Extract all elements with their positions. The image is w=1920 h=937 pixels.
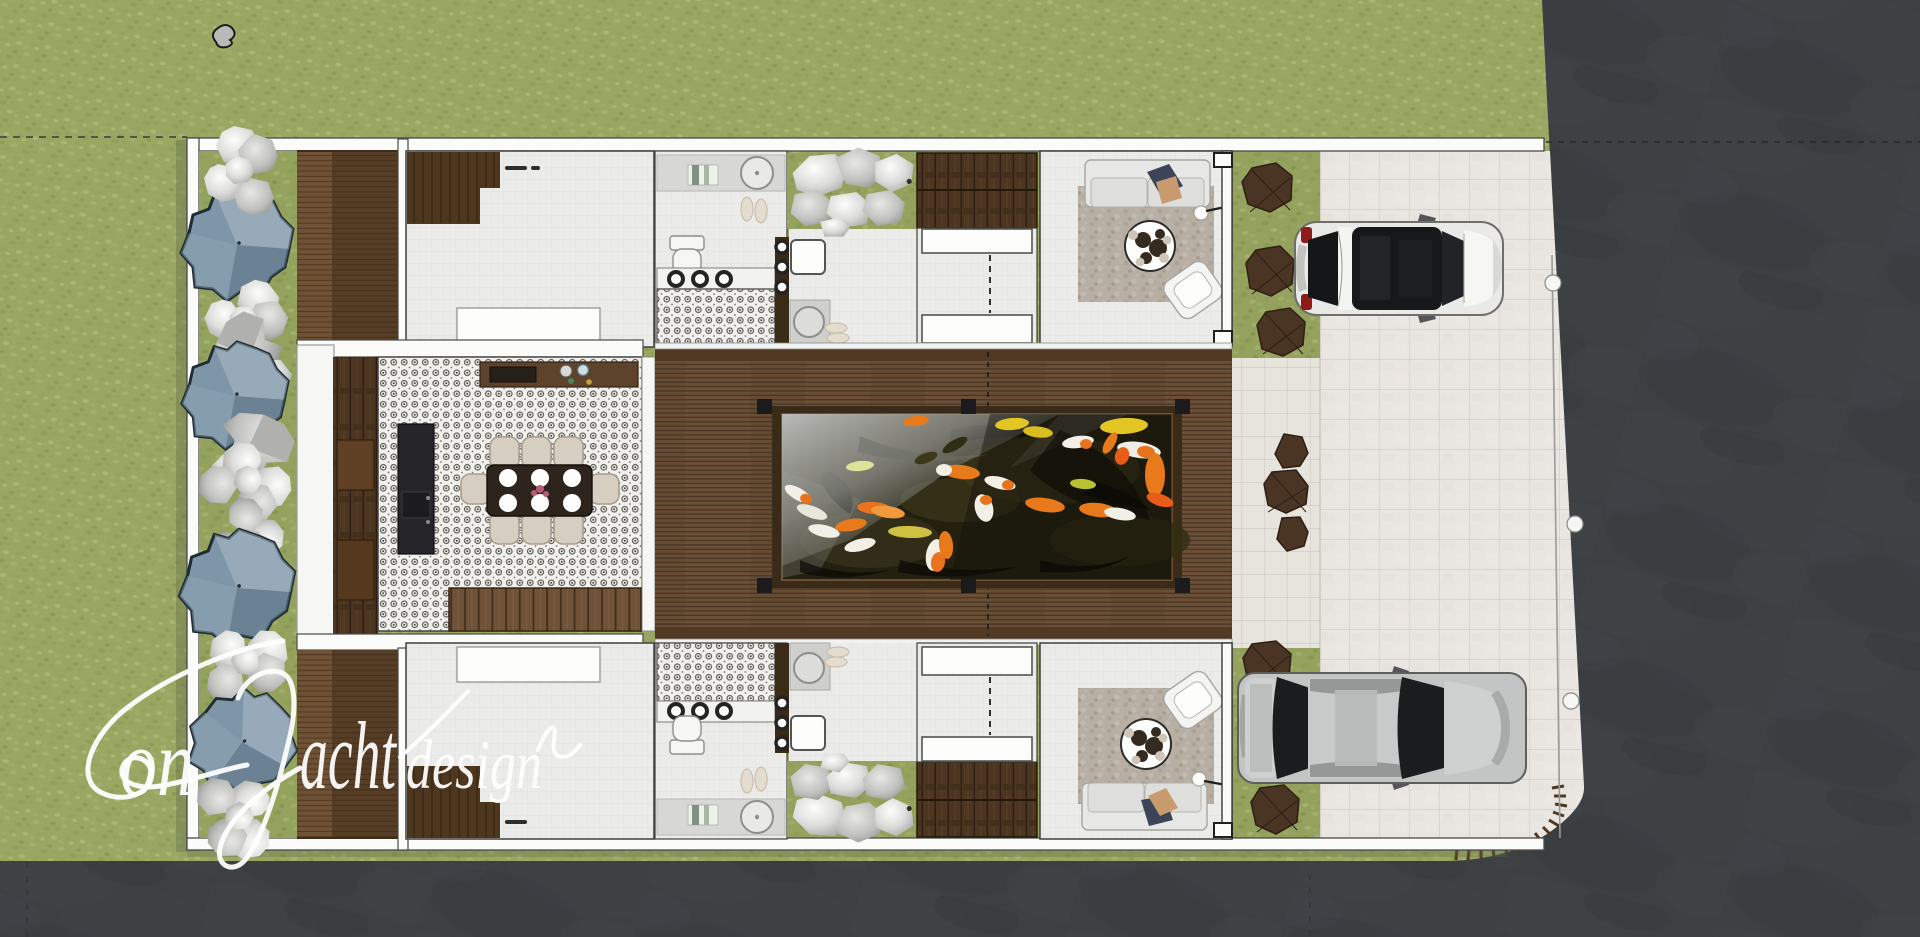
svg-text:acht: acht xyxy=(300,702,397,809)
svg-text:on: on xyxy=(120,709,194,816)
svg-text:design: design xyxy=(406,727,542,804)
